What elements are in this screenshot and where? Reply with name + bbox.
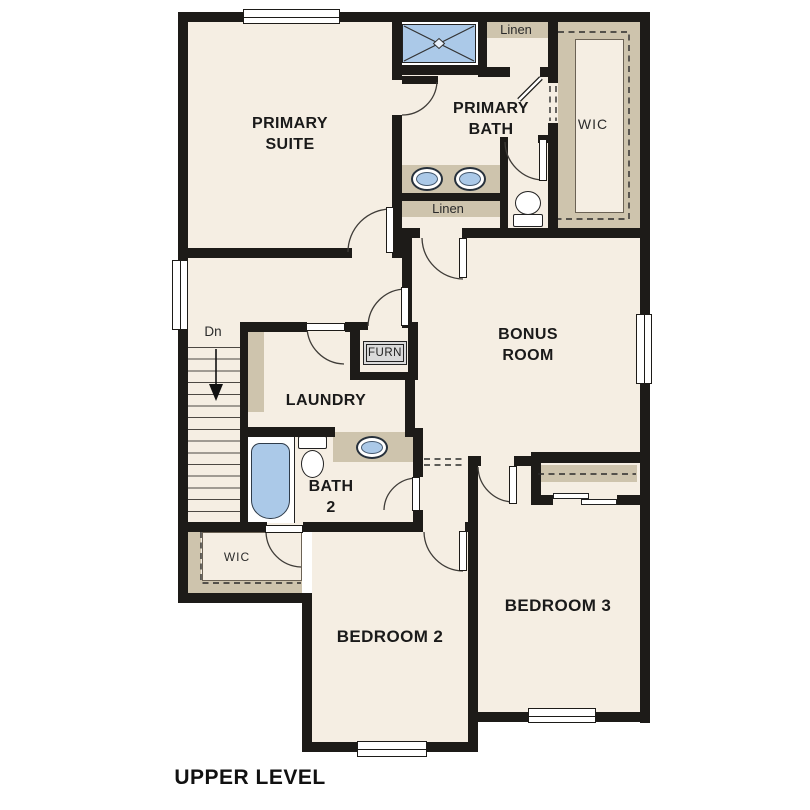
wall-hall-bottom-a xyxy=(178,522,267,532)
window-hall-left xyxy=(172,260,188,330)
door-leaf-bath2 xyxy=(412,477,420,511)
door-leaf-primary-suite xyxy=(386,207,394,253)
wall-bath2-right-stub xyxy=(413,510,423,532)
wall-laundry-top xyxy=(240,322,307,332)
door-leaf-furnace xyxy=(401,287,409,326)
wall-suite-bottom xyxy=(188,248,352,258)
closet-label-wic-upper: WIC xyxy=(563,117,623,132)
laundry-counter xyxy=(248,328,264,412)
wall-closet3-front-left xyxy=(531,495,553,505)
wall-bath2-right xyxy=(413,428,423,477)
furnace-label: FURN xyxy=(366,344,404,362)
wall-shower-bottom xyxy=(392,65,487,75)
wall-hall-bottom-b xyxy=(303,522,423,532)
toilet-tank-bath2 xyxy=(298,436,327,449)
door-leaf-hall-linen xyxy=(459,238,467,278)
room-label-laundry: LAUNDRY xyxy=(266,390,386,411)
sink-primary-2-basin xyxy=(459,172,481,186)
bathtub xyxy=(251,443,290,519)
sink-bath2-basin xyxy=(361,441,383,454)
wall-toilet-room-left xyxy=(500,137,508,237)
window-bedroom3 xyxy=(528,708,596,723)
room-label-primary-suite: PRIMARY SUITE xyxy=(200,113,380,155)
wall-bedroom2-left xyxy=(302,593,312,752)
toilet-tank-primary xyxy=(513,214,543,227)
toilet-bowl-bath2 xyxy=(301,450,324,478)
wall-wic-lower-bottom xyxy=(178,593,312,603)
staircase xyxy=(188,347,240,523)
window-primary-suite xyxy=(243,9,340,24)
toilet-bowl-primary xyxy=(515,191,541,215)
closet-bypass-door-2 xyxy=(581,499,617,505)
closet-label-linen-upper: Linen xyxy=(483,22,549,37)
window-bonus-room xyxy=(636,314,652,384)
page-title: UPPER LEVEL xyxy=(145,766,355,790)
door-leaf-bedroom2 xyxy=(459,531,467,571)
furnace-unit: FURN xyxy=(363,341,407,365)
wall-closet3-front-right xyxy=(617,495,640,505)
wall-furn-bottom xyxy=(350,372,418,380)
sink-primary-1-basin xyxy=(416,172,438,186)
wall-linen-bottom-right xyxy=(540,67,548,77)
stairs-down-label: Dn xyxy=(195,324,231,339)
bedroom3-closet-shelf xyxy=(537,465,637,482)
wall-bonus-bottom-a xyxy=(468,456,481,466)
closet-label-linen-hall: Linen xyxy=(418,201,478,216)
wall-bath-door-stub xyxy=(402,76,438,84)
wall-laundry-top-stub xyxy=(345,322,352,332)
window-bedroom2 xyxy=(357,741,427,757)
closet-label-wic-lower: WIC xyxy=(207,550,267,565)
wic-lower-shelf-bottom xyxy=(188,580,302,593)
door-leaf-bedroom3 xyxy=(509,466,517,504)
wall-bath2-top xyxy=(240,427,335,437)
room-label-bedroom3: BEDROOM 3 xyxy=(473,595,643,616)
room-label-bonus-room: BONUS ROOM xyxy=(458,324,598,366)
wall-closet3-top xyxy=(531,452,650,463)
wall-furn-top-stub xyxy=(350,322,368,330)
room-label-bath2: BATH 2 xyxy=(296,476,366,518)
shower-pan xyxy=(402,24,476,63)
wic-lower-shelf-left xyxy=(188,532,201,583)
door-leaf-wic-lower xyxy=(265,525,303,533)
room-label-bedroom2: BEDROOM 2 xyxy=(300,626,480,647)
door-leaf-toilet-room xyxy=(539,139,547,181)
wall-bonus-top-a xyxy=(398,228,420,238)
wall-linen-bottom-left xyxy=(478,67,510,77)
room-label-primary-bath: PRIMARY BATH xyxy=(431,98,551,140)
wall-wic-upper-left-a xyxy=(548,13,558,83)
floor-plan: FURN xyxy=(0,0,810,810)
wall-vanity-bottom xyxy=(396,193,506,201)
wall-bonus-top-b xyxy=(462,228,650,238)
door-leaf-laundry xyxy=(306,323,345,331)
